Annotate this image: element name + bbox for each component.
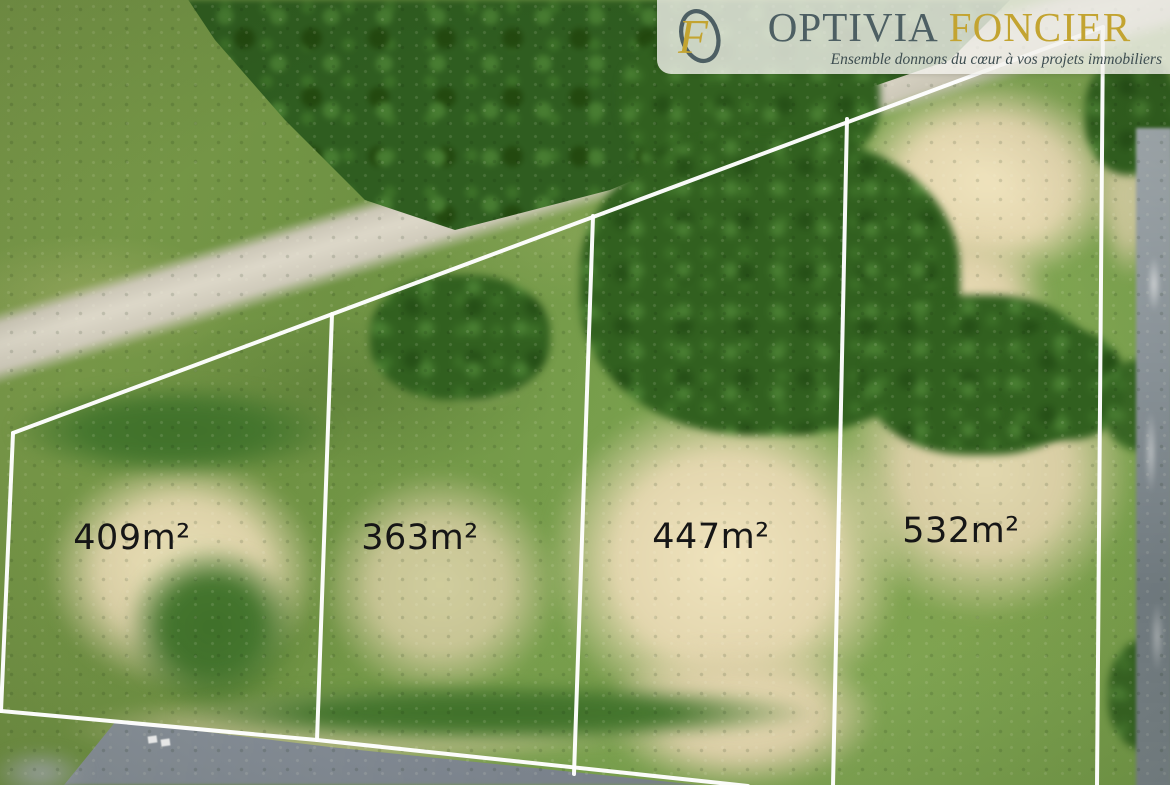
monogram-f-letter: F: [677, 9, 709, 64]
aerial-land-plots-photo: 409m² 363m² 447m² 532m² F OPTIVIAFONCIER…: [0, 0, 1170, 785]
divider-plot3-plot4: [833, 119, 847, 785]
brand-name: OPTIVIAFONCIER: [768, 7, 1131, 48]
plot-boundary-lines: [0, 0, 1170, 785]
boundary-bottom: [1, 711, 748, 785]
plot-area-label-2: 363m²: [361, 518, 478, 558]
brand-name-foncier: FONCIER: [949, 4, 1131, 50]
plot-area-label-3: 447m²: [652, 517, 769, 557]
logo-text-block: OPTIVIAFONCIER Ensemble donnons du cœur …: [729, 6, 1170, 69]
boundary-left: [1, 433, 13, 711]
brand-tagline: Ensemble donnons du cœur à vos projets i…: [831, 51, 1170, 69]
boundary-right: [1097, 27, 1103, 785]
optivia-of-monogram-icon: F: [665, 5, 729, 69]
boundary-top: [13, 27, 1103, 433]
divider-plot2-plot3: [574, 216, 593, 774]
plot-area-label-4: 532m²: [902, 511, 1019, 551]
plot-area-label-1: 409m²: [73, 518, 190, 558]
divider-plot1-plot2: [317, 314, 332, 740]
logo-banner: F OPTIVIAFONCIER Ensemble donnons du cœu…: [657, 0, 1170, 74]
brand-name-optivia: OPTIVIA: [768, 4, 939, 50]
